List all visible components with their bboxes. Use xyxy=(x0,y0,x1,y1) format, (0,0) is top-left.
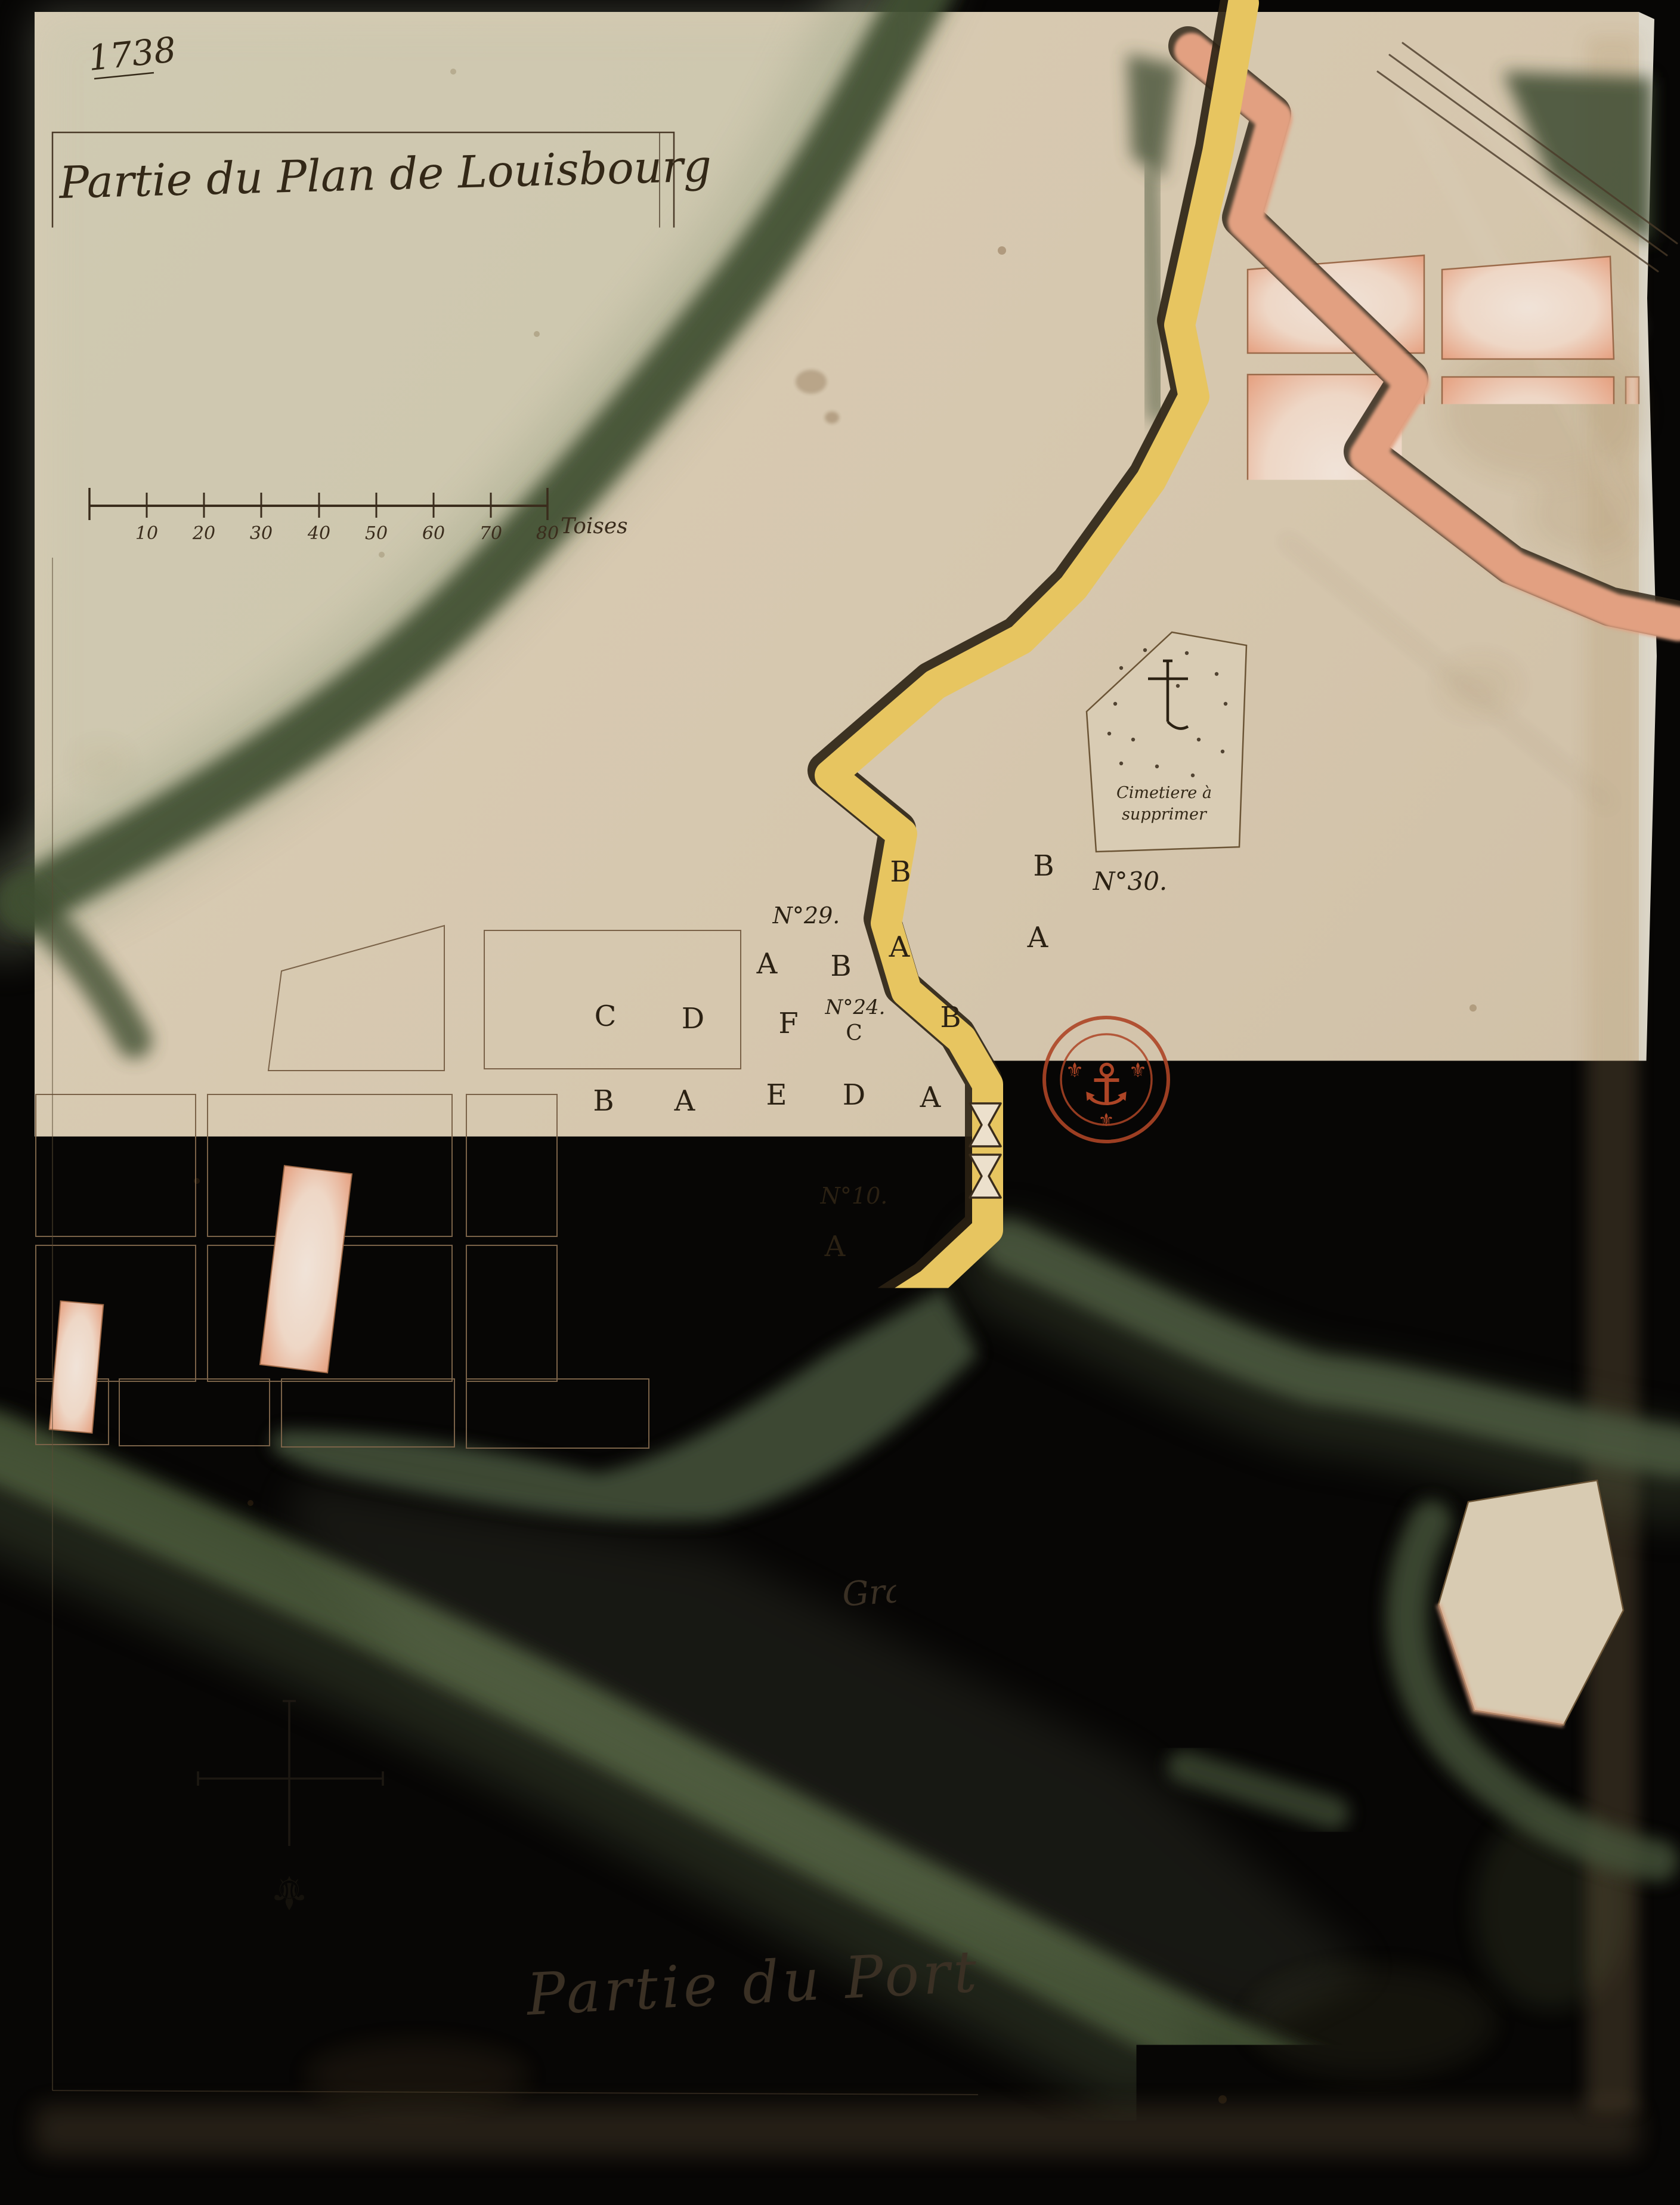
lot-label-c2: C xyxy=(846,1021,862,1046)
lot-label-no10: N°10. xyxy=(820,1183,888,1209)
town-block-partial xyxy=(1626,377,1639,1415)
green-strip-top xyxy=(1148,179,1157,412)
lot-label-e1: E xyxy=(766,1078,787,1112)
lot-label-d1: D xyxy=(682,1002,704,1035)
town-block-pink xyxy=(1256,1035,1430,1230)
town-block-pink xyxy=(1442,256,1614,359)
lot-label-a6: A xyxy=(824,1230,846,1263)
cemetery-label-line1: Cimetiere à xyxy=(1116,784,1212,802)
lot-label-a4: A xyxy=(674,1084,696,1118)
town-block-pink xyxy=(1453,596,1614,804)
anchor-icon: ⚓ xyxy=(1081,1052,1132,1118)
fleur-de-lis-icon: ⚜ xyxy=(1099,1110,1115,1131)
scale-tick: 30 xyxy=(250,523,273,544)
lot-label-c1: C xyxy=(595,1000,617,1033)
lot-label-b2: B xyxy=(890,855,911,889)
lot-label-b3: B xyxy=(1033,849,1054,883)
fleur-de-lis-icon: ⚜ xyxy=(1129,1059,1147,1083)
lot-label-b1: B xyxy=(830,950,851,983)
cemetery-label-line2: supprimer xyxy=(1122,805,1208,824)
lot-label-b4: B xyxy=(940,1001,961,1034)
map-scan: Cimetiere à supprimer DEPOT DES COLONIES… xyxy=(0,0,1680,2205)
town-block-pink xyxy=(1453,818,1614,1015)
lot-label-a1: A xyxy=(756,947,778,981)
pink-building xyxy=(417,1239,472,1372)
scale-tick: 70 xyxy=(479,523,502,544)
lot-label-no30: N°30. xyxy=(1093,867,1168,896)
lot-label-d2: D xyxy=(843,1078,865,1112)
town-block-pink xyxy=(1453,1250,1602,1357)
town-block-pink xyxy=(1256,1250,1430,1415)
lot-label-f1: F xyxy=(778,1007,798,1040)
scale-tick: 80 xyxy=(536,523,559,544)
lot-label-g1: G. xyxy=(1251,1845,1277,1874)
scale-tick: 40 xyxy=(307,523,330,544)
lot-label-no29: N°29. xyxy=(772,902,840,929)
scale-unit-label: Toises xyxy=(561,514,628,539)
scale-tick: 10 xyxy=(135,523,158,544)
louisbourg-plan-1738: Cimetiere à supprimer DEPOT DES COLONIES… xyxy=(0,0,1680,2205)
title-line4: Colorée de Jaune, 1738. xyxy=(57,341,398,373)
town-block-pink xyxy=(1256,594,1424,797)
town-block-pink xyxy=(1453,1035,1614,1230)
lot-label-a5: A xyxy=(920,1081,942,1114)
lot-label-a2: A xyxy=(889,930,911,964)
fleur-de-lis-icon: ⚜ xyxy=(1066,1059,1084,1083)
title-line3: occupé par la nouvelle fortification — xyxy=(57,289,557,319)
lot-label-no24: N°24. xyxy=(825,995,886,1019)
compass-fleur-de-lis-icon: ⚜ xyxy=(268,1865,310,1919)
scale-tick: 20 xyxy=(192,523,215,544)
scale-tick: 50 xyxy=(365,523,388,544)
scale-tick: 60 xyxy=(422,523,445,544)
lot-label-a3: A xyxy=(1027,921,1049,954)
lot-label-b5: B xyxy=(593,1084,614,1118)
